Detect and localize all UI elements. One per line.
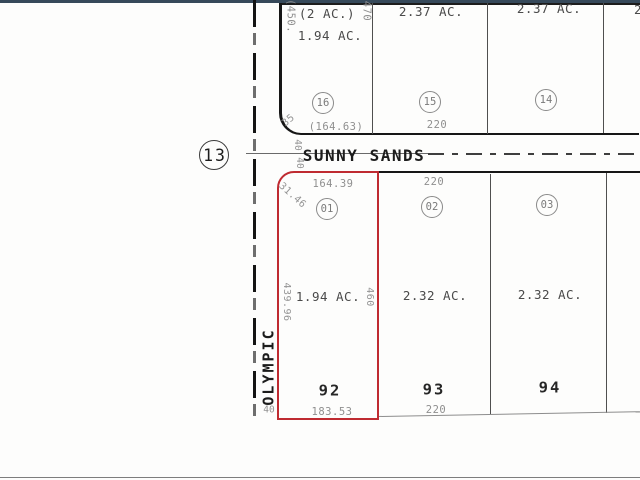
parcel-number-93: 93: [423, 382, 446, 398]
olympic-centerline: [253, 0, 256, 421]
lot-03-circle: 03: [536, 194, 558, 216]
lot-14-circle: 14: [535, 89, 557, 111]
lot-15-frontage: 220: [427, 120, 447, 131]
north-block-west-boundary: [279, 3, 639, 135]
parcel-92-front-dim: 164.39: [313, 179, 354, 190]
plat-map-viewport: 13 (450. (2 AC.) 1.94 AC. 470 2.37 AC. 2…: [0, 0, 640, 480]
street-name-olympic: OLYMPIC: [262, 328, 277, 405]
lot-line-02-03: [490, 174, 491, 415]
lot-16-net-area: 1.94 AC.: [298, 30, 362, 43]
dim-west-450: (450.: [285, 0, 296, 33]
lot-line-03-east: [606, 173, 607, 413]
lot-16-frontage: (164.63): [309, 122, 364, 133]
parcel-92-east-dim: 460: [364, 287, 374, 307]
parcel-93-area: 2.32 AC.: [403, 290, 467, 303]
sunny-sands-centerline-dashes: [428, 153, 640, 155]
parcel-94-area: 2.32 AC.: [518, 289, 582, 302]
parcel-number-94: 94: [539, 380, 562, 396]
clipped-area-label: 2.: [634, 4, 640, 17]
parcel-92-rear-dim: 183.53: [312, 407, 353, 418]
parcel-92-west-dim: 439.96: [281, 282, 291, 321]
lot-02-circle: 02: [421, 196, 443, 218]
lot-15-area: 2.37 AC.: [399, 6, 463, 19]
lot-16-circle: 16: [312, 92, 334, 114]
street-name-sunny-sands: SUNNY SANDS: [303, 148, 425, 164]
road-halfwidth-north: 40: [292, 139, 302, 150]
lot-line-14-east: [603, 3, 604, 133]
parcel-92-area: 1.94 AC.: [296, 291, 360, 304]
lot-16-gross-area: (2 AC.): [299, 8, 355, 21]
map-bottom-border: [0, 477, 640, 479]
parcel-93-rear-dim: 220: [426, 405, 446, 416]
lot-line-16-15: [372, 3, 373, 134]
parcel-93-front-dim: 220: [424, 177, 444, 188]
lot-14-area: 2.37 AC.: [517, 3, 581, 16]
olympic-halfwidth: 40: [263, 405, 274, 415]
lot-01-circle: 01: [316, 198, 338, 220]
lot-line-15-14: [487, 3, 488, 134]
dim-east-470: 470: [361, 1, 372, 21]
parcel-number-92: 92: [319, 383, 342, 399]
lot-15-circle: 15: [419, 91, 441, 113]
section-circle: 13: [199, 140, 229, 170]
